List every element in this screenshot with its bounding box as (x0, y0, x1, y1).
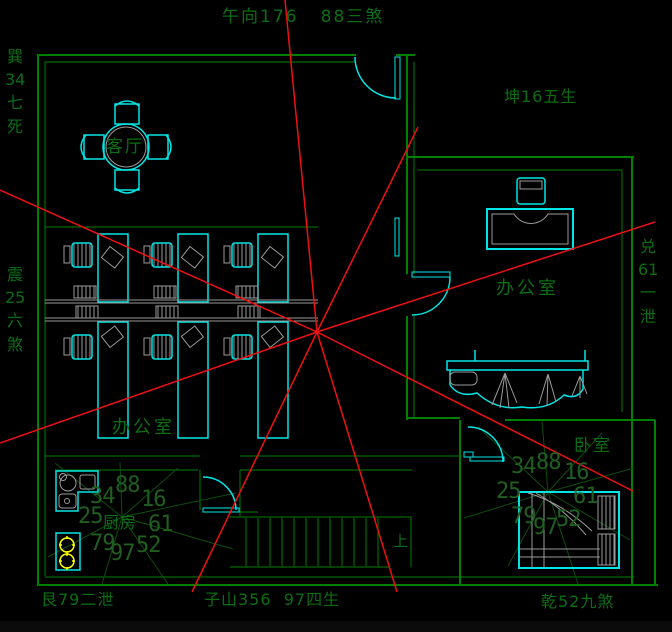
label-bottom-mountain: 子山356 97四生 (204, 591, 340, 609)
room-label-living: 客厅 (106, 132, 144, 157)
doors (203, 57, 504, 512)
label-bottom-left-trigram: 艮79二泄 (41, 591, 114, 609)
label-top-left-trigram: 巽34七死 (5, 45, 25, 138)
gas-stove (56, 533, 80, 570)
room-label-office-right: 办公室 (496, 274, 559, 300)
sofa (447, 350, 588, 408)
label-bottom-right-trigram: 乾52九煞 (541, 593, 614, 611)
compass-number: 97 (110, 543, 135, 565)
cad-floorplan-canvas[interactable]: 午向176 88三煞 巽34七死 坤16五生 震25六煞 兑61一泄 艮79二泄… (0, 0, 672, 632)
compass-number: 16 (564, 462, 589, 484)
compass-number: 52 (136, 535, 161, 557)
compass-number: 88 (536, 452, 561, 474)
label-top-direction: 午向176 88三煞 (222, 8, 384, 27)
stairs-up-label: 上 (393, 533, 409, 550)
room-label-kitchen: 厨房 (103, 509, 137, 533)
bottom-edge-bar (0, 621, 672, 632)
label-left-trigram: 震25六煞 (5, 263, 25, 356)
staircase (230, 517, 411, 567)
compass-number: 97 (533, 517, 558, 539)
compass-number: 34 (511, 456, 536, 478)
compass-number: 25 (496, 481, 521, 503)
room-label-bedroom: 卧室 (574, 431, 612, 456)
compass-rose-kitchen (48, 462, 236, 584)
label-top-right-trigram: 坤16五生 (504, 88, 577, 106)
compass-number: 79 (511, 506, 536, 528)
compass-number: 61 (573, 486, 598, 508)
office-desk (487, 178, 573, 249)
compass-number: 88 (115, 475, 140, 497)
compass-number: 25 (78, 506, 103, 528)
label-right-trigram: 兑61一泄 (638, 235, 658, 328)
compass-number: 52 (556, 509, 581, 531)
compass-number: 16 (141, 489, 166, 511)
room-label-office-main: 办公室 (112, 413, 175, 439)
office-cubicles (45, 234, 318, 438)
